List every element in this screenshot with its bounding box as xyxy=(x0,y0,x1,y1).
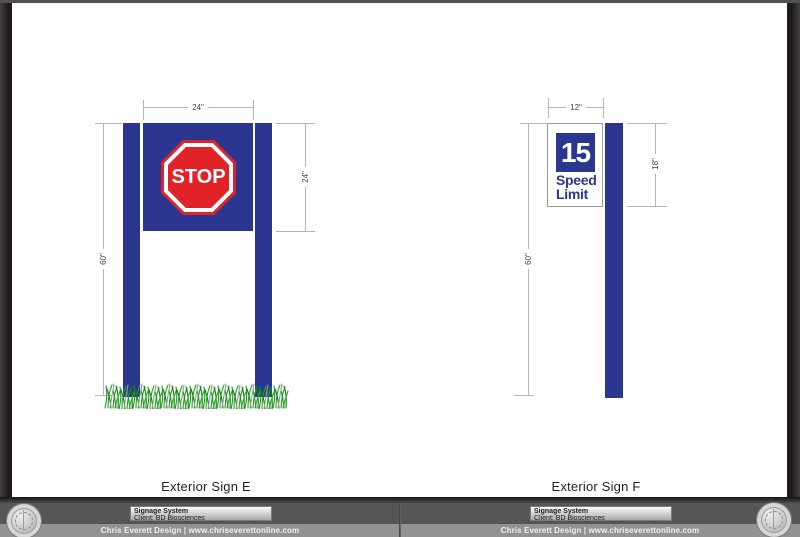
dim-label-sign-e-width: 24" xyxy=(188,103,208,113)
dim-label-sign-e-height: 24" xyxy=(301,167,311,187)
seal-stamp-icon xyxy=(756,502,792,537)
title-block-title: Signage System xyxy=(534,507,671,515)
dim-extension-line xyxy=(520,123,547,124)
dim-extension-line xyxy=(603,98,604,118)
dim-extension-line xyxy=(95,123,122,124)
dim-label-sign-f-post-height: 60" xyxy=(524,249,534,269)
sign-e-panel: STOP xyxy=(143,123,253,231)
stop-sign-face: STOP xyxy=(168,147,229,208)
stop-sign-octagon: STOP xyxy=(161,140,236,215)
frame-right-edge xyxy=(788,3,800,524)
dim-extension-line xyxy=(276,231,315,232)
seal-stamp-icon xyxy=(6,503,42,537)
sign-e-caption: Exterior Sign E xyxy=(161,479,251,494)
dim-label-sign-e-post-height: 60" xyxy=(99,249,109,269)
sign-f-post xyxy=(605,123,623,398)
dim-label-sign-f-height: 18" xyxy=(651,154,661,174)
dim-extension-line xyxy=(253,100,254,120)
speed-limit-number-square: 15 xyxy=(556,133,595,172)
designer-credit-left: Chris Everett Design | www.chriseveretto… xyxy=(101,526,299,535)
dim-extension-line xyxy=(627,123,667,124)
frame-left-edge xyxy=(0,3,12,524)
title-block-client: Client: BD Biosciences xyxy=(534,515,671,521)
dim-extension-line xyxy=(548,98,549,118)
sign-f-panel: 15 Speed Limit xyxy=(547,123,603,207)
dim-extension-line xyxy=(276,123,315,124)
stop-sign-text: STOP xyxy=(171,166,225,189)
sign-f-caption: Exterior Sign F xyxy=(552,479,641,494)
speed-limit-value: 15 xyxy=(561,137,590,169)
title-block-title: Signage System xyxy=(134,507,271,515)
title-block-left: Signage System Client: BD Biosciences xyxy=(130,506,272,521)
title-block-client: Client: BD Biosciences xyxy=(134,515,271,521)
dim-extension-line xyxy=(143,100,144,120)
dim-extension-line xyxy=(514,395,534,396)
sign-e-left-post xyxy=(123,123,140,397)
dim-label-sign-f-width: 12" xyxy=(566,103,586,113)
grass-graphic xyxy=(104,382,291,409)
speed-limit-words: Speed Limit xyxy=(556,173,597,201)
title-block-right: Signage System Client: BD Biosciences xyxy=(530,506,672,521)
dim-extension-line xyxy=(627,206,667,207)
document-spread: 24" 60" 24" STOP xyxy=(0,0,800,537)
sign-e-right-post xyxy=(255,123,272,397)
stop-sign-white-ring: STOP xyxy=(164,143,233,212)
designer-credit-right: Chris Everett Design | www.chriseveretto… xyxy=(501,526,699,535)
speed-word: Speed xyxy=(556,173,597,187)
limit-word: Limit xyxy=(556,187,597,201)
page-seam xyxy=(399,503,401,537)
